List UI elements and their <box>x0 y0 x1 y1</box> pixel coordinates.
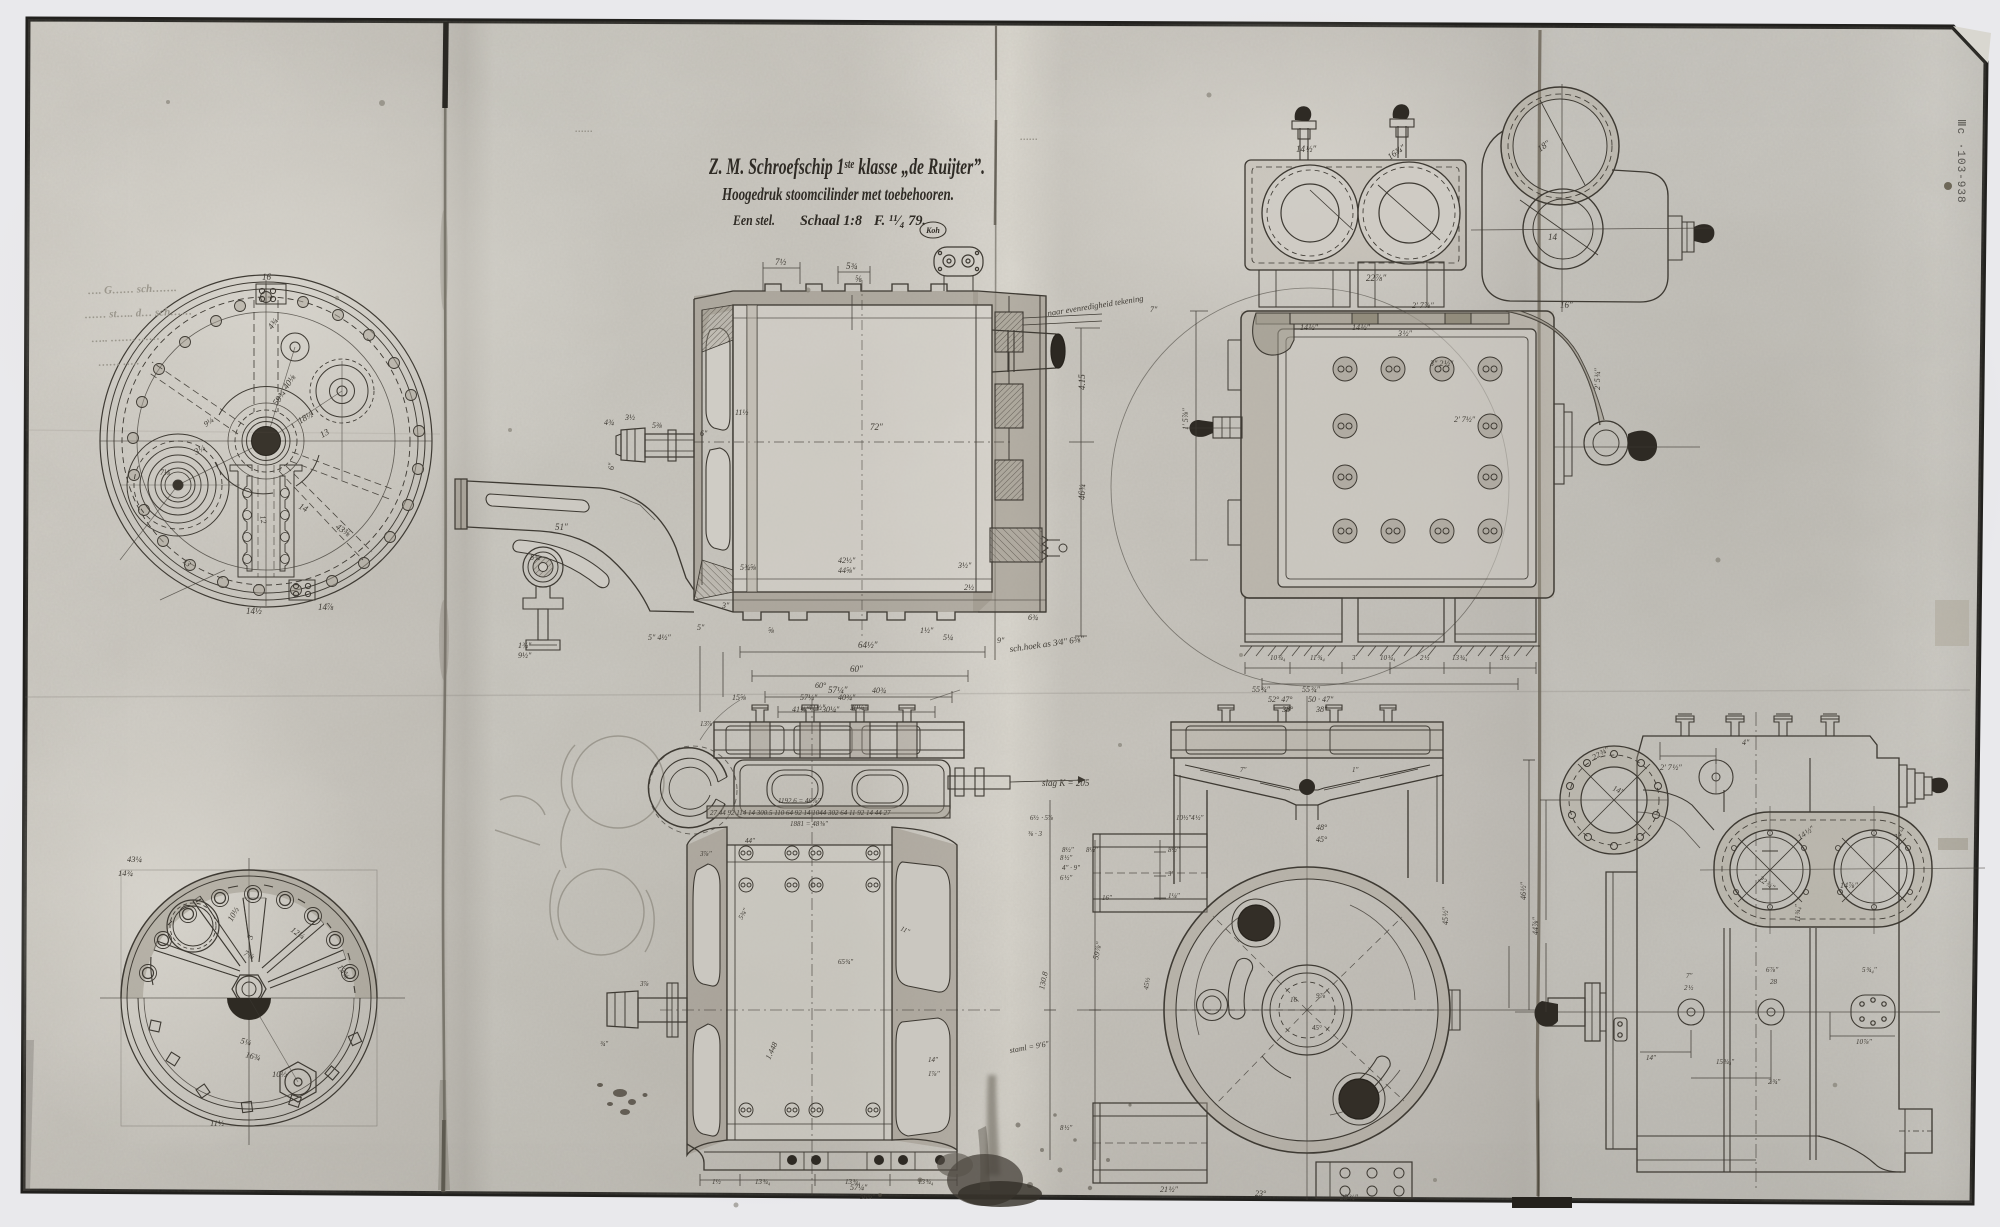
svg-text:16″: 16″ <box>1560 300 1573 310</box>
svg-text:3″: 3″ <box>721 601 730 610</box>
svg-text:23°: 23° <box>1255 1189 1267 1198</box>
svg-text:46 ½″: 46 ½″ <box>1519 881 1528 900</box>
svg-text:10 ⅞″: 10 ⅞″ <box>1856 1038 1872 1046</box>
svg-text:10½″4 ½″: 10½″4 ½″ <box>1176 814 1204 822</box>
svg-text:27 44 92 114 14 300.5 110 64 9: 27 44 92 114 14 300.5 110 64 92 14 1044 … <box>710 809 891 817</box>
svg-text:2 ½: 2 ½ <box>1420 654 1430 662</box>
svg-text:2′ 7 ½″: 2′ 7 ½″ <box>1660 763 1682 772</box>
svg-text:6 ⅞″: 6 ⅞″ <box>1766 966 1778 974</box>
svg-text:45°: 45° <box>1316 835 1328 844</box>
svg-text:4¾: 4¾ <box>604 418 614 427</box>
svg-text:1¾″: 1¾″ <box>518 641 532 650</box>
svg-text:Schaal 1:8: Schaal 1:8 <box>800 213 862 229</box>
svg-text:1½: 1½ <box>712 1178 722 1186</box>
svg-text:14 ½″: 14 ½″ <box>1300 323 1319 332</box>
svg-text:56¾″: 56¾″ <box>860 1193 875 1201</box>
svg-text:3⅞″: 3⅞″ <box>699 850 712 858</box>
svg-text:9″: 9″ <box>997 636 1005 645</box>
svg-text:9½″: 9½″ <box>518 651 532 660</box>
svg-text:Hoogedruk stoomcilinder met to: Hoogedruk stoomcilinder met toebehooren. <box>721 184 954 204</box>
svg-text:⅜ · 3: ⅜ · 3 <box>1028 830 1043 838</box>
svg-text:7⅛: 7⅛ <box>160 468 170 477</box>
svg-text:5″ 4½″: 5″ 4½″ <box>648 633 671 642</box>
svg-text:16: 16 <box>262 272 272 282</box>
svg-text:1192.6 = 46 ⅞″: 1192.6 = 46 ⅞″ <box>778 797 821 805</box>
svg-text:5¼: 5¼ <box>943 633 953 642</box>
svg-text:21 ½″: 21 ½″ <box>1160 1185 1179 1194</box>
svg-text:51″: 51″ <box>555 522 568 532</box>
svg-text:72″: 72″ <box>870 422 883 432</box>
svg-text:11 ¾₄″: 11 ¾₄″ <box>1794 904 1802 922</box>
svg-text:2′ 7½″: 2′ 7½″ <box>1454 415 1476 424</box>
svg-text:6″: 6″ <box>700 429 708 438</box>
svg-text:15 ¾₄″: 15 ¾₄″ <box>1716 1058 1734 1066</box>
svg-text:11½: 11½ <box>735 408 748 417</box>
svg-text:4″: 4″ <box>1742 738 1750 747</box>
svg-text:¾″: ¾″ <box>600 1040 608 1048</box>
svg-text:4″ · 9″: 4″ · 9″ <box>1062 864 1080 872</box>
svg-text:44″: 44″ <box>745 837 755 845</box>
svg-text:6½ ‧ 5⅞: 6½ ‧ 5⅞ <box>1030 814 1053 822</box>
svg-text:slag K = 205: slag K = 205 <box>1042 778 1090 788</box>
svg-text:9 ⅞: 9 ⅞ <box>1316 992 1325 1000</box>
svg-text:6″: 6″ <box>607 462 616 470</box>
svg-text:65¾″: 65¾″ <box>838 958 853 966</box>
svg-text:60°: 60° <box>815 681 827 690</box>
svg-text:64½″: 64½″ <box>858 640 878 650</box>
svg-text:2½: 2½ <box>964 583 974 592</box>
svg-text:14 ½″: 14 ½″ <box>1352 323 1371 332</box>
svg-text:14¾: 14¾ <box>118 868 134 878</box>
svg-text:Ⅲc ·103-938: Ⅲc ·103-938 <box>1954 119 1966 204</box>
svg-text:3 ½: 3 ½ <box>1499 654 1510 662</box>
svg-text:⅝: ⅝ <box>855 274 862 284</box>
svg-text:11 ¾₄: 11 ¾₄ <box>1310 654 1325 662</box>
svg-text:13 ¾₄: 13 ¾₄ <box>1452 654 1468 662</box>
svg-text:45°: 45° <box>1312 1024 1322 1032</box>
svg-text:43¼: 43¼ <box>127 854 143 864</box>
svg-text:2′ 5 ¾″: 2′ 5 ¾″ <box>1593 368 1602 390</box>
svg-text:44⅝″: 44⅝″ <box>838 566 856 575</box>
svg-text:6¾: 6¾ <box>1028 613 1038 622</box>
svg-text:8 ½″: 8 ½″ <box>1060 854 1072 862</box>
svg-text:….. ……. ……: ….. ……. …… <box>91 331 160 345</box>
svg-text:3½: 3½ <box>624 413 635 422</box>
svg-text:8½″: 8½″ <box>1062 846 1074 854</box>
svg-text:Een stel.: Een stel. <box>732 213 775 229</box>
svg-text:10 ¾₄: 10 ¾₄ <box>1270 654 1286 662</box>
svg-text:3½″: 3½″ <box>957 561 972 570</box>
svg-text:42½″: 42½″ <box>838 556 856 565</box>
svg-text:41½″: 41½″ <box>792 705 810 714</box>
svg-text:1½″: 1½″ <box>920 626 934 635</box>
svg-text:4.15: 4.15 <box>1077 374 1087 390</box>
svg-text:3: 3 <box>1351 654 1356 662</box>
svg-text:12: 12 <box>258 515 268 524</box>
svg-text:F. ¹¹⁄₄ 79.: F. ¹¹⁄₄ 79. <box>873 213 926 229</box>
svg-text:38°: 38° <box>1281 705 1294 714</box>
svg-text:44 ⅞″: 44 ⅞″ <box>1531 916 1540 935</box>
svg-text:13 ¾₄: 13 ¾₄ <box>845 1178 861 1186</box>
svg-text:48°: 48° <box>1316 823 1328 832</box>
svg-text:50 · 47″: 50 · 47″ <box>1308 695 1334 704</box>
svg-text:⅝: ⅝ <box>768 626 774 635</box>
svg-text:1″: 1″ <box>1352 766 1359 774</box>
svg-text:14: 14 <box>1548 232 1558 242</box>
svg-text:8 ½″: 8 ½″ <box>1060 1124 1072 1132</box>
svg-text:46¾: 46¾ <box>1077 484 1087 500</box>
svg-text:10 ¾₄: 10 ¾₄ <box>1380 654 1396 662</box>
svg-text:14 ½″: 14 ½″ <box>1296 144 1317 154</box>
svg-text:7½: 7½ <box>775 257 787 267</box>
svg-text:……: …… <box>575 124 593 134</box>
svg-text:5⅜: 5⅜ <box>652 421 662 430</box>
svg-text:1′ 5 ⅞″: 1′ 5 ⅞″ <box>1181 408 1190 430</box>
svg-text:7″: 7″ <box>1150 305 1158 314</box>
svg-text:13⅞: 13⅞ <box>700 720 712 728</box>
svg-text:3″ 2 ½″: 3″ 2 ½″ <box>1429 359 1454 368</box>
svg-text:14½: 14½ <box>246 606 262 616</box>
svg-text:14″: 14″ <box>1646 1054 1656 1062</box>
svg-text:…… …..: …… ….. <box>98 355 140 368</box>
svg-text:52° 47°: 52° 47° <box>1268 695 1293 704</box>
svg-text:23 ¾″: 23 ¾″ <box>1340 1193 1359 1202</box>
svg-text:5 ¾₄″: 5 ¾₄″ <box>1862 966 1877 974</box>
svg-text:2′ 7 ⅞″: 2′ 7 ⅞″ <box>1412 301 1434 310</box>
svg-text:2 ½: 2 ½ <box>1684 984 1694 992</box>
svg-text:11½: 11½ <box>210 1118 225 1128</box>
svg-text:14″: 14″ <box>928 1056 938 1064</box>
svg-text:8¾: 8¾ <box>530 553 540 562</box>
svg-text:16″: 16″ <box>1102 894 1112 902</box>
svg-text:10½: 10½ <box>272 1069 288 1079</box>
svg-text:60″: 60″ <box>850 664 863 674</box>
svg-text:5¾⅝: 5¾⅝ <box>740 563 756 572</box>
svg-text:Koh: Koh <box>925 226 940 235</box>
svg-text:16: 16 <box>1290 996 1298 1004</box>
svg-text:14⅞: 14⅞ <box>318 602 334 612</box>
svg-text:5¾: 5¾ <box>846 261 858 271</box>
svg-text:6 ½″: 6 ½″ <box>1060 874 1072 882</box>
svg-text:3⅞: 3⅞ <box>639 980 649 988</box>
svg-text:30¼″: 30¼″ <box>821 705 840 714</box>
svg-text:1881 = 48 ⅜″: 1881 = 48 ⅜″ <box>790 820 828 828</box>
svg-text:45 ½″: 45 ½″ <box>1441 906 1450 925</box>
svg-text:……: …… <box>1020 132 1038 142</box>
svg-text:22 ⅞″: 22 ⅞″ <box>1366 273 1387 283</box>
svg-text:3 ½″: 3 ½″ <box>1397 329 1413 338</box>
svg-text:7″: 7″ <box>1240 766 1247 774</box>
svg-text:1⅞″: 1⅞″ <box>928 1070 940 1078</box>
svg-text:7″: 7″ <box>1686 972 1693 980</box>
svg-text:2 ¾″: 2 ¾″ <box>1768 1078 1780 1086</box>
svg-text:13 ¾₄: 13 ¾₄ <box>755 1178 771 1186</box>
svg-text:28: 28 <box>1770 978 1778 986</box>
svg-text:14 ⅞″: 14 ⅞″ <box>1840 881 1859 890</box>
svg-text:5″: 5″ <box>697 623 705 632</box>
